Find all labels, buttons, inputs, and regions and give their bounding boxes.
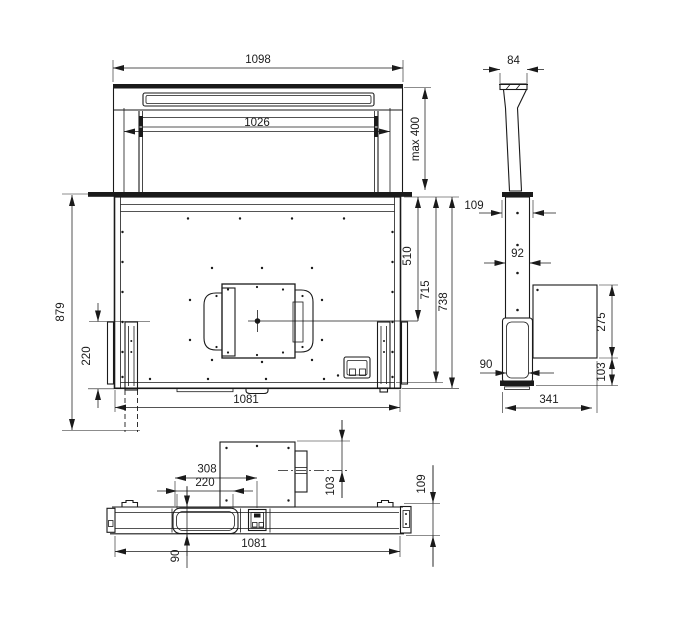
bottom-base-bar — [107, 501, 411, 534]
air-outlet — [173, 508, 238, 533]
side-flange — [502, 192, 533, 197]
dim-text-1098: 1098 — [245, 54, 271, 66]
dim-side-panel-depth: 84 — [483, 55, 544, 83]
rail-right — [378, 322, 391, 392]
dim-text-1026: 1026 — [244, 117, 270, 129]
dim-bottom-base-width: 1081 — [115, 536, 400, 557]
side-panel — [499, 84, 528, 191]
dim-text-103-side: 103 — [596, 362, 608, 381]
blower-assembly — [204, 284, 418, 358]
dim-bottom-duct-center-offset: 103 — [297, 420, 350, 498]
technical-drawing: 1098 1026 max 400 879 220 510 — [0, 0, 680, 630]
terminal-block-bottom — [249, 510, 267, 531]
panel-clip — [139, 116, 144, 127]
dim-text-1081-front: 1081 — [233, 394, 259, 406]
bottom-motor-box — [220, 442, 348, 507]
dim-text-275: 275 — [596, 312, 608, 331]
dim-front-right-stack: 510 715 738 — [396, 197, 459, 388]
dim-text-308: 308 — [197, 464, 216, 476]
dim-front-max-extension: max 400 — [404, 88, 431, 191]
terminal-box-front — [337, 357, 370, 378]
dim-side-bottom-offset: 103 — [536, 358, 618, 386]
dim-text-220-front: 220 — [81, 346, 93, 365]
side-motor-box — [533, 285, 597, 358]
dim-text-715: 715 — [420, 280, 432, 299]
dim-text-109-side: 109 — [464, 200, 483, 212]
front-body — [108, 197, 419, 432]
dim-text-510: 510 — [402, 246, 414, 265]
drawing-svg: 1098 1026 max 400 879 220 510 — [0, 0, 680, 630]
dim-side-top-frame-depth: 109 — [464, 200, 556, 218]
side-bracket-left — [108, 322, 114, 384]
dim-side-housing-depth: 90 — [480, 359, 554, 373]
rail-left — [125, 322, 138, 432]
dim-front-rail-height: 220 — [81, 303, 150, 408]
dim-text-92: 92 — [511, 248, 524, 260]
dim-text-220-bottom: 220 — [195, 477, 214, 489]
handle-notch — [246, 389, 268, 394]
dim-bottom-outlet-width: 220 — [157, 477, 253, 509]
panel-clip — [374, 116, 379, 127]
mount-tab-left — [122, 501, 138, 508]
front-view: 1098 1026 max 400 879 220 510 — [55, 54, 459, 432]
duct-flange — [295, 451, 307, 492]
dim-side-motor-box-height: 275 — [596, 285, 618, 358]
panel-clip — [139, 128, 144, 138]
dim-side-column-depth: 92 — [484, 248, 551, 263]
dim-text-90-side: 90 — [480, 359, 493, 371]
side-view: 84 109 92 275 103 90 — [464, 55, 618, 413]
dim-text-109-bottom: 109 — [416, 474, 428, 493]
bottom-view: 103 308 220 90 1081 — [107, 420, 440, 568]
dim-front-overall-height: 879 — [55, 194, 140, 431]
dim-text-1081-bottom: 1081 — [241, 538, 267, 550]
panel-clip — [374, 128, 379, 138]
front-retractable-panel — [113, 84, 403, 192]
dim-text-max-400: max 400 — [410, 117, 422, 161]
dim-text-103-bottom: 103 — [325, 476, 337, 495]
dim-text-84: 84 — [507, 55, 520, 67]
side-lower-housing — [500, 318, 534, 389]
dim-front-panel-width: 1026 — [124, 117, 390, 132]
dim-text-879: 879 — [55, 302, 67, 321]
vent-grille — [143, 93, 374, 106]
dim-text-341: 341 — [539, 394, 558, 406]
dim-text-738: 738 — [438, 292, 450, 311]
dim-front-overall-width: 1098 — [113, 54, 403, 82]
side-bracket-right — [402, 322, 408, 384]
dim-front-body-width: 1081 — [115, 390, 400, 412]
mount-tab-right — [378, 501, 394, 508]
